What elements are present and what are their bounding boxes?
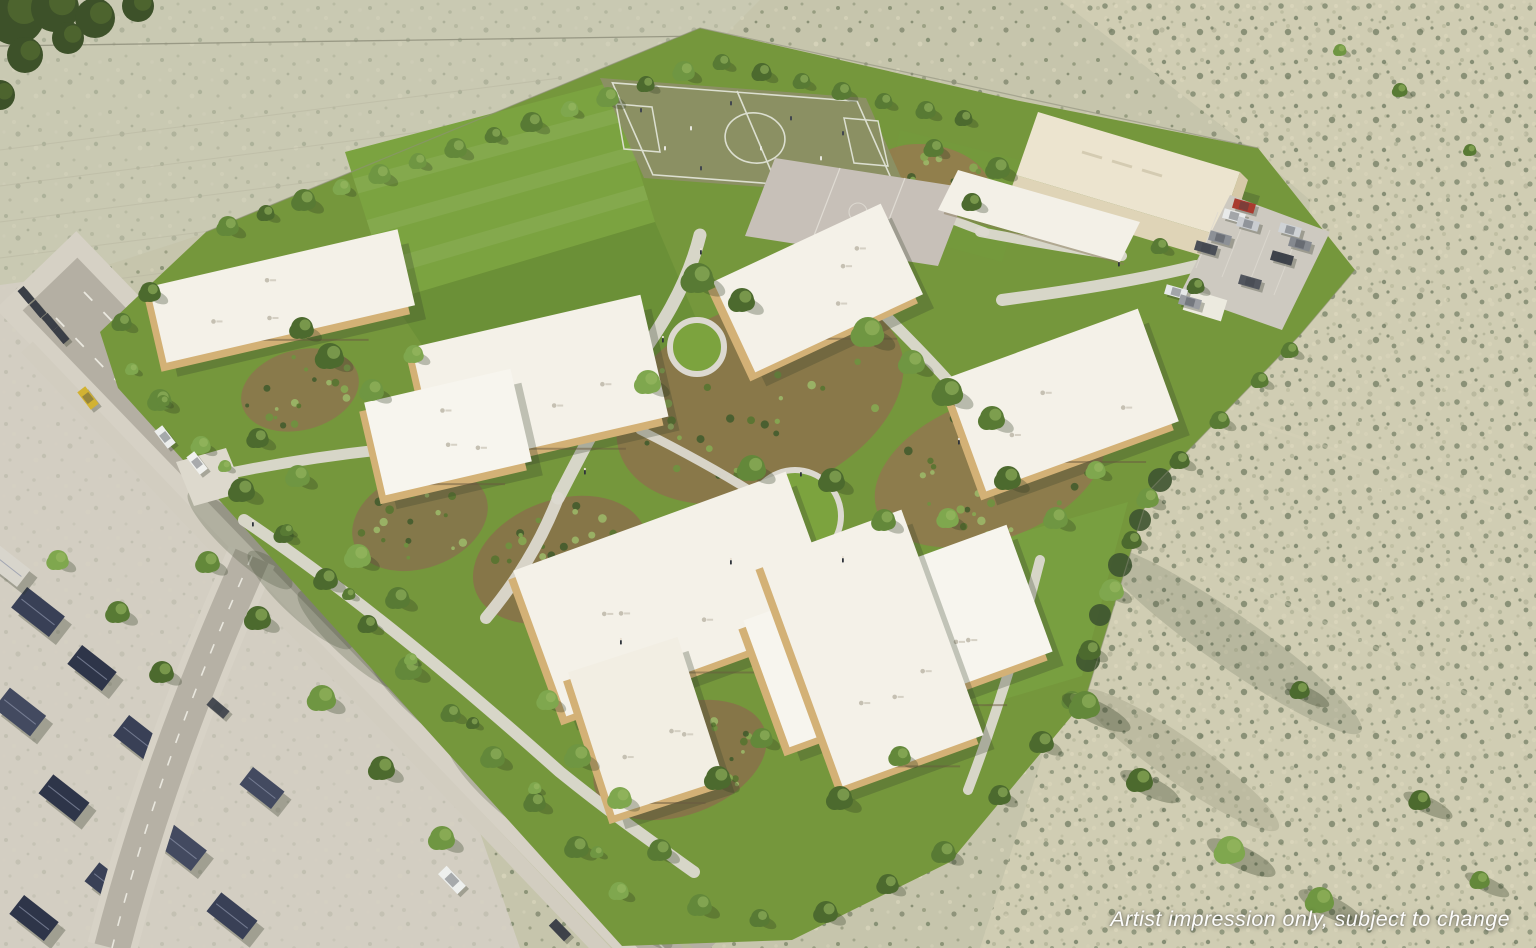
render-canvas [0,0,1536,948]
aerial-render: Artist impression only, subject to chang… [0,0,1536,948]
caption: Artist impression only, subject to chang… [1110,907,1510,932]
